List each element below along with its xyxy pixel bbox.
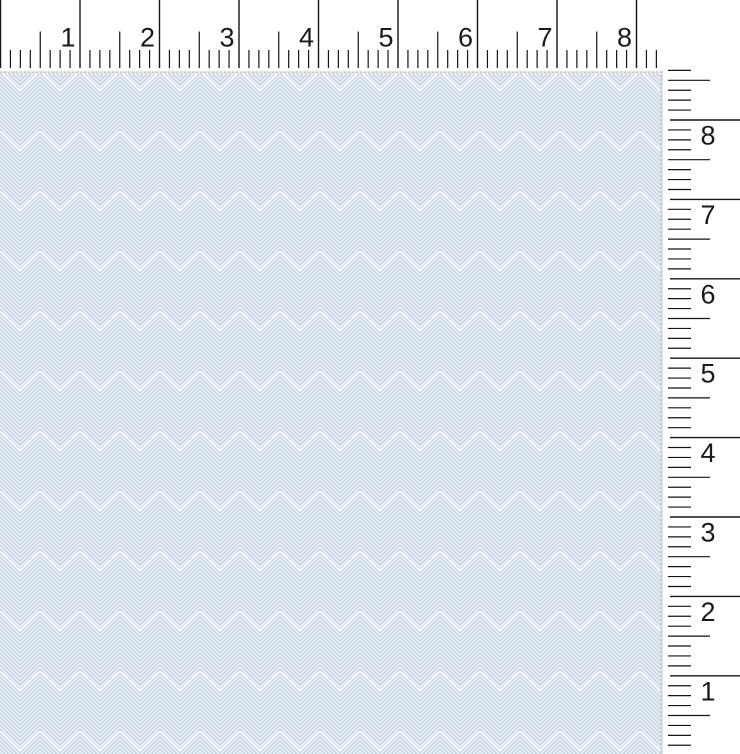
right-ruler-number: 4 [700, 438, 715, 468]
top-ruler-number: 3 [219, 23, 234, 53]
top-ruler-number: 6 [458, 23, 473, 53]
top-ruler-number: 4 [299, 23, 314, 53]
right-ruler-number: 1 [700, 676, 715, 706]
rulers-overlay: 1234567887654321 [0, 0, 740, 754]
right-ruler-number: 5 [700, 359, 715, 389]
top-ruler-number: 5 [378, 23, 393, 53]
right-ruler-number: 6 [700, 279, 715, 309]
right-ruler-number: 3 [700, 518, 715, 548]
fabric-swatch-viewer: 1234567887654321 [0, 0, 740, 754]
right-ruler-number: 2 [700, 597, 715, 627]
top-ruler-number: 1 [60, 23, 75, 53]
top-ruler-number: 8 [617, 23, 632, 53]
top-ruler-number: 2 [140, 23, 155, 53]
right-ruler: 87654321 [668, 70, 740, 745]
right-ruler-number: 8 [700, 121, 715, 151]
top-ruler: 12345678 [1, 0, 657, 68]
right-ruler-number: 7 [700, 200, 715, 230]
top-ruler-number: 7 [537, 23, 552, 53]
